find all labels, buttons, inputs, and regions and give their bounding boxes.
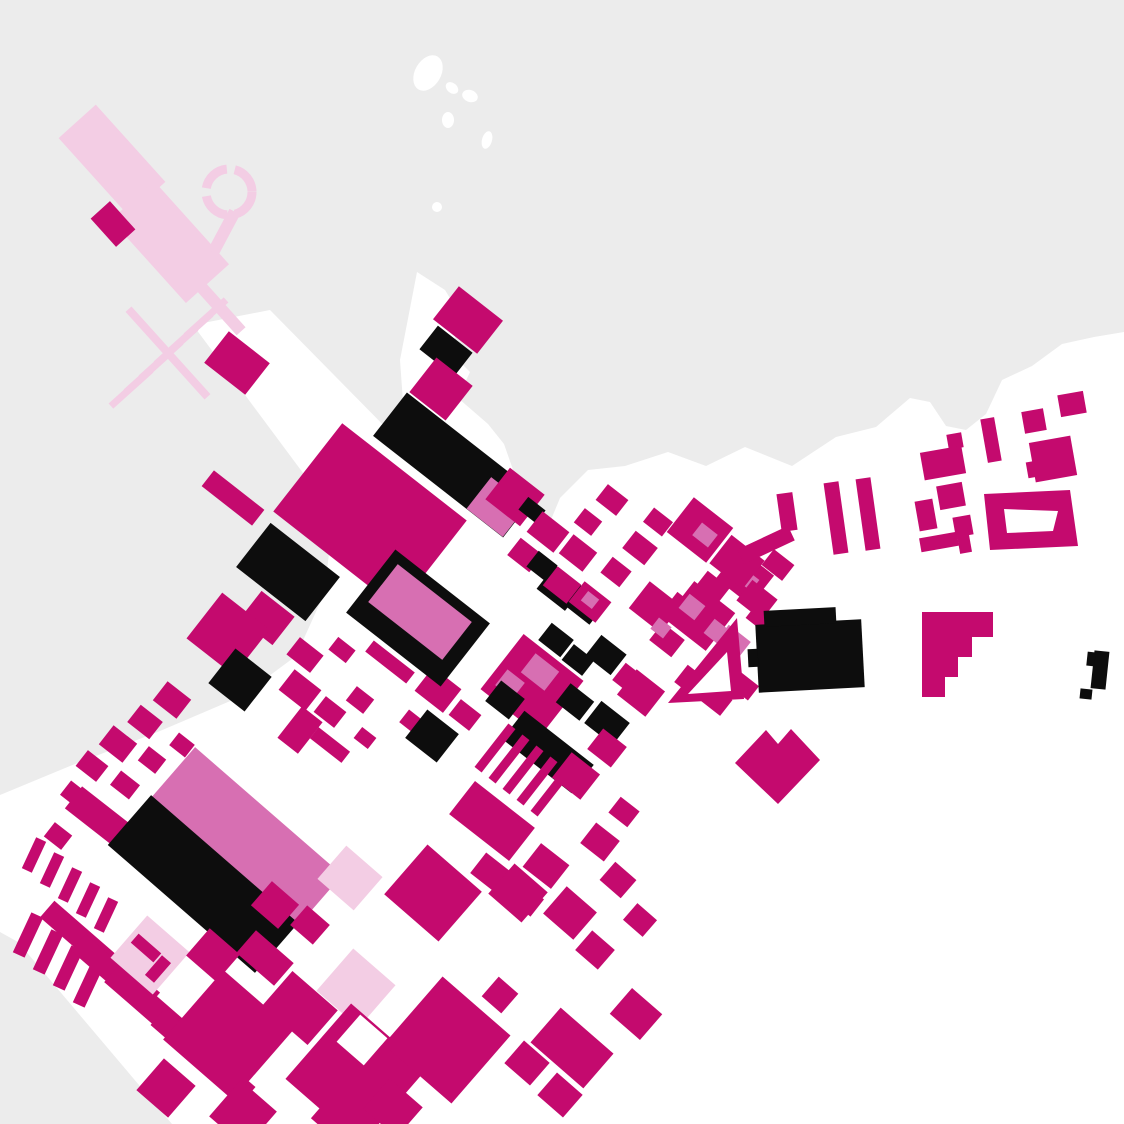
building-building-black xyxy=(748,649,759,667)
building-building-magenta xyxy=(936,482,966,510)
building-building-magenta xyxy=(1021,408,1046,433)
building-building-black xyxy=(755,619,864,692)
building-building-black xyxy=(1080,688,1093,699)
island xyxy=(442,112,454,128)
building-building-magenta xyxy=(1026,460,1045,479)
building-building-black xyxy=(1086,652,1095,667)
city-map xyxy=(0,0,1124,1124)
building-building-magenta xyxy=(1057,391,1086,417)
island xyxy=(432,202,442,212)
courtyard xyxy=(1004,509,1058,533)
map-stage xyxy=(0,0,1124,1124)
